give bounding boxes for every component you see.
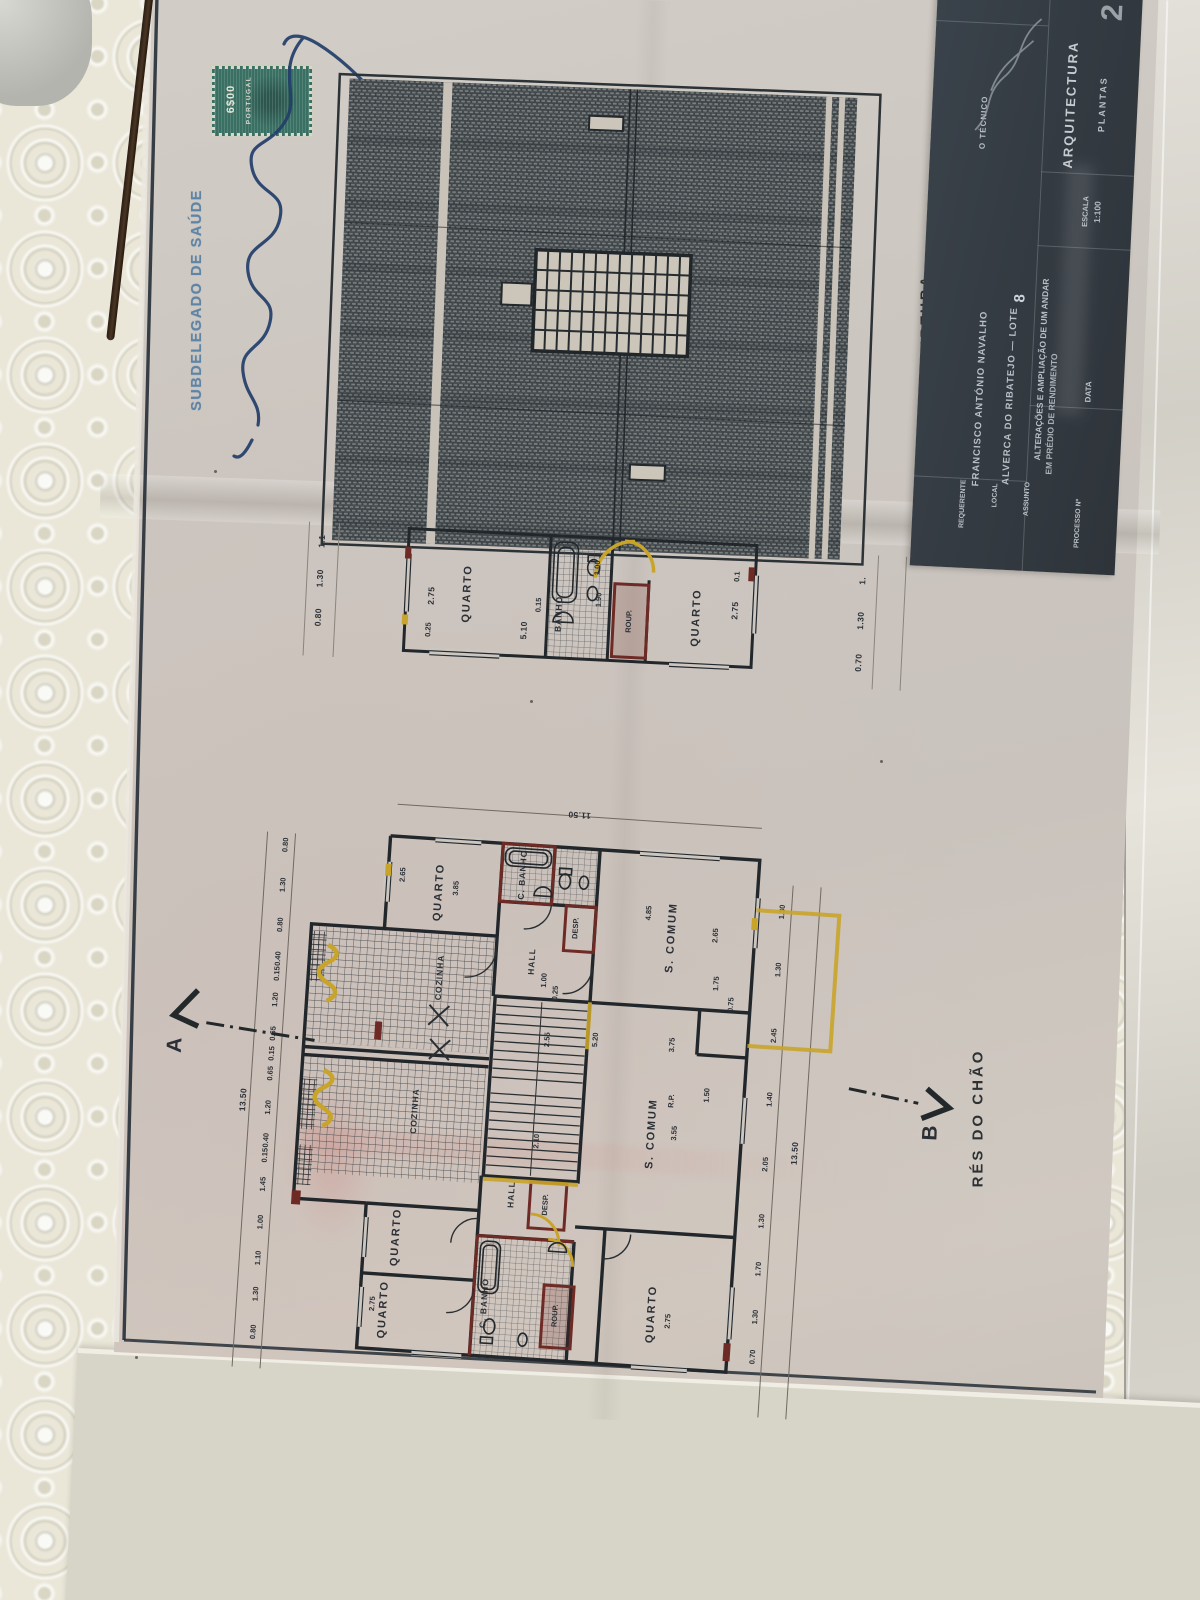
svg-text:0.25: 0.25 bbox=[550, 985, 560, 1000]
section-marker-b: B bbox=[842, 1063, 1058, 1194]
total-height-dim: 13.50 bbox=[237, 1088, 249, 1112]
svg-text:1.50: 1.50 bbox=[702, 1088, 712, 1103]
svg-text:QUARTO: QUARTO bbox=[388, 1208, 404, 1267]
svg-text:1.45: 1.45 bbox=[258, 1177, 268, 1192]
title-block: 2 O TÉCNICO ARQUITECTURA PLANTAS ESCALA … bbox=[910, 0, 1143, 575]
health-authority-stamp-text: SUBDELEGADO DE SAÚDE bbox=[189, 189, 205, 411]
svg-text:4.85: 4.85 bbox=[644, 905, 654, 920]
svg-text:0.80: 0.80 bbox=[275, 917, 285, 932]
svg-text:S. COMUM: S. COMUM bbox=[663, 902, 680, 973]
svg-text:5.20: 5.20 bbox=[590, 1032, 600, 1047]
svg-text:0.70: 0.70 bbox=[747, 1349, 757, 1364]
svg-text:0.70: 0.70 bbox=[853, 653, 864, 672]
svg-text:R.P.: R.P. bbox=[666, 1094, 676, 1108]
tax-stamp-country: PORTUGAL bbox=[246, 76, 253, 124]
room-label-banho: BANHO bbox=[553, 596, 565, 633]
svg-text:2.55: 2.55 bbox=[542, 1032, 552, 1047]
escala-label: ESCALA bbox=[1080, 196, 1090, 227]
svg-text:2.65: 2.65 bbox=[398, 867, 408, 882]
svg-text:2.75: 2.75 bbox=[426, 586, 437, 605]
svg-text:0.75: 0.75 bbox=[726, 997, 736, 1012]
svg-text:HALL: HALL bbox=[526, 948, 538, 975]
room-label-quarto: QUARTO bbox=[689, 588, 704, 647]
svg-text:1.10: 1.10 bbox=[253, 1250, 263, 1265]
dust-speck bbox=[214, 470, 217, 473]
svg-text:1.00: 1.00 bbox=[592, 560, 602, 575]
dust-speck bbox=[530, 700, 533, 703]
svg-text:0.15: 0.15 bbox=[260, 1148, 270, 1163]
svg-text:1.90: 1.90 bbox=[594, 592, 604, 607]
ground-plan-title: RÉS DO CHÃO bbox=[970, 1049, 987, 1188]
svg-text:1.30: 1.30 bbox=[756, 1214, 766, 1229]
dust-speck bbox=[880, 760, 883, 763]
assunto-label: ASSUNTO bbox=[1023, 482, 1032, 516]
roof-skylight-grid bbox=[532, 250, 691, 357]
tecnico-signature bbox=[940, 0, 1068, 162]
svg-text:3.75: 3.75 bbox=[667, 1037, 677, 1052]
svg-text:QUARTO: QUARTO bbox=[431, 863, 447, 922]
local-value: ALVERCA DO RIBATEJO — LOTE bbox=[1000, 307, 1020, 485]
svg-text:1.30: 1.30 bbox=[278, 877, 288, 892]
svg-text:1.30: 1.30 bbox=[314, 569, 325, 588]
svg-text:2.05: 2.05 bbox=[760, 1157, 770, 1172]
svg-text:2.75: 2.75 bbox=[729, 601, 740, 620]
svg-text:ROUP.: ROUP. bbox=[549, 1304, 559, 1327]
svg-text:1.30: 1.30 bbox=[250, 1286, 260, 1301]
svg-text:1.20: 1.20 bbox=[263, 1100, 273, 1115]
pencil-mark bbox=[135, 1356, 138, 1359]
svg-text:DESP.: DESP. bbox=[570, 917, 580, 939]
roof-chimney bbox=[589, 116, 624, 131]
svg-text:1.75: 1.75 bbox=[711, 976, 721, 991]
svg-text:1.30: 1.30 bbox=[773, 962, 783, 977]
svg-text:0.15: 0.15 bbox=[533, 597, 543, 612]
svg-text:0.80: 0.80 bbox=[312, 608, 323, 627]
section-letter-a: A bbox=[163, 1037, 187, 1053]
room-label-roup: ROUP. bbox=[624, 610, 634, 633]
svg-text:2.10: 2.10 bbox=[531, 1134, 541, 1149]
svg-text:2.75: 2.75 bbox=[367, 1296, 377, 1311]
svg-text:5.10: 5.10 bbox=[518, 621, 529, 640]
photo-of-architectural-drawing: SUBDELEGADO DE SAÚDE 6$00 PORTUGAL bbox=[0, 0, 1200, 1600]
svg-text:1.00: 1.00 bbox=[255, 1214, 265, 1229]
section-marker-a: A bbox=[157, 970, 343, 1089]
svg-text:1.00: 1.00 bbox=[539, 973, 549, 988]
svg-text:2.65: 2.65 bbox=[710, 928, 720, 943]
svg-text:1.: 1. bbox=[857, 577, 867, 585]
total-height-dim-right: 13.50 bbox=[789, 1141, 801, 1165]
sheet-type: PLANTAS bbox=[1096, 76, 1109, 132]
processo-label: PROCESSO Nº bbox=[1073, 499, 1082, 549]
svg-text:S. COMUM: S. COMUM bbox=[643, 1098, 660, 1169]
svg-text:1.40: 1.40 bbox=[764, 1092, 774, 1107]
svg-text:QUARTO: QUARTO bbox=[644, 1285, 660, 1344]
svg-text:0.40: 0.40 bbox=[273, 951, 283, 966]
upper-dim-left: 1.1 1.30 0.80 bbox=[312, 535, 326, 627]
svg-text:1.1: 1.1 bbox=[316, 535, 327, 549]
upper-floor-plan: 1.1 1.30 0.80 1. 1.30 0.70 bbox=[288, 513, 915, 701]
roof-plan bbox=[320, 70, 883, 569]
svg-text:HALL: HALL bbox=[505, 1181, 517, 1208]
svg-text:0.25: 0.25 bbox=[423, 622, 433, 637]
section-letter-b: B bbox=[918, 1125, 942, 1141]
svg-text:3.85: 3.85 bbox=[451, 881, 461, 896]
requerente-value: FRANCISCO ANTÓNIO NAVALHO bbox=[970, 310, 990, 486]
svg-text:2.45: 2.45 bbox=[769, 1028, 779, 1043]
svg-text:1.30: 1.30 bbox=[855, 611, 866, 630]
svg-text:2.75: 2.75 bbox=[663, 1314, 673, 1329]
upper-dim-right: 1. 1.30 0.70 bbox=[853, 577, 868, 672]
svg-text:DESP.: DESP. bbox=[540, 1194, 550, 1216]
svg-text:1.70: 1.70 bbox=[753, 1262, 763, 1277]
total-width-dim: 11.50 bbox=[568, 810, 591, 821]
svg-text:QUARTO: QUARTO bbox=[375, 1280, 391, 1339]
svg-text:1.30: 1.30 bbox=[750, 1309, 760, 1324]
ground-floor-plan: 13.50 11.50 13.50 0.80 1.30 0.80 0.40 0.… bbox=[216, 765, 918, 1467]
escala-value: 1:100 bbox=[1092, 201, 1103, 223]
data-label: DATA bbox=[1083, 381, 1093, 402]
sheet-number: 2 bbox=[1096, 3, 1131, 21]
svg-text:3.55: 3.55 bbox=[669, 1126, 679, 1141]
portugal-tax-stamp: 6$00 PORTUGAL bbox=[212, 66, 312, 136]
svg-text:0.80: 0.80 bbox=[280, 837, 290, 852]
svg-text:0.40: 0.40 bbox=[261, 1133, 271, 1148]
requerente-label: REQUERENTE bbox=[958, 479, 967, 528]
lote-number: 8 bbox=[1011, 294, 1028, 303]
local-label: LOCAL bbox=[991, 483, 999, 507]
roof-chimney bbox=[629, 465, 665, 481]
svg-text:0.80: 0.80 bbox=[248, 1324, 258, 1339]
svg-text:0.1: 0.1 bbox=[732, 571, 741, 582]
tax-stamp-value: 6$00 bbox=[225, 85, 237, 113]
room-label-quarto: QUARTO bbox=[460, 564, 475, 623]
left-dim-chain: 0.80 1.30 0.80 0.40 0.15 1.20 0.65 0.15 … bbox=[248, 837, 290, 1339]
roof-chimney bbox=[501, 282, 532, 305]
